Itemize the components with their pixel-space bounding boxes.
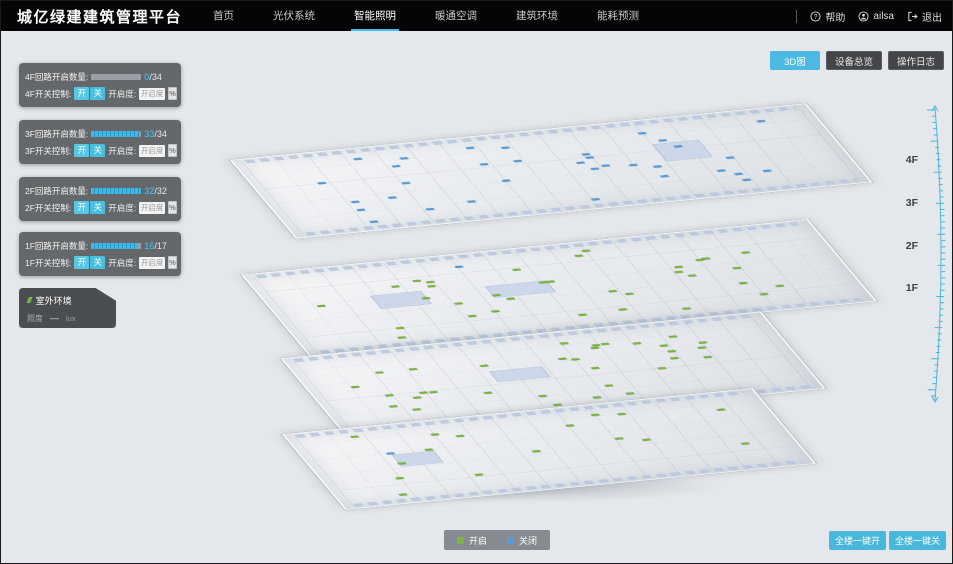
help-label: 帮助 (825, 9, 845, 24)
floor-zoom-ruler[interactable] (921, 104, 949, 404)
circuit-count-label-4f: 4F回路开启数量: (25, 71, 88, 83)
switch-off-button-1f[interactable]: 关 (90, 256, 105, 269)
legend-off-swatch (507, 537, 514, 544)
switch-label-2f: 2F开关控制: (25, 202, 71, 214)
user-menu[interactable]: ailsa (858, 11, 894, 22)
user-area: ? 帮助 ailsa 退出 (796, 1, 942, 31)
dim-label-4f: 开启度: (108, 88, 136, 100)
percent-button-2f[interactable]: % (168, 201, 177, 214)
percent-button-1f[interactable]: % (168, 256, 177, 269)
dim-label-3f: 开启度: (108, 145, 136, 157)
circuit-count-value-4f: 0/34 (144, 72, 162, 82)
illuminance-unit: lux (66, 314, 76, 323)
help-button[interactable]: ? 帮助 (810, 9, 845, 24)
switch-label-1f: 1F开关控制: (25, 257, 71, 269)
nav-item-lighting[interactable]: 智能照明 (351, 1, 399, 31)
percent-button-4f[interactable]: % (168, 87, 177, 100)
floor-panel-3f: 3F回路开启数量: 33/34 3F开关控制: 开 关 开启度: % (19, 120, 181, 164)
light-rays-icon: /// (27, 296, 31, 305)
circuit-progress-bar-3f (91, 131, 141, 137)
illuminance-value: — (50, 313, 59, 323)
svg-text:?: ? (814, 13, 818, 20)
logout-icon (907, 11, 918, 22)
username: ailsa (873, 11, 894, 22)
app-window: 城亿绿建建筑管理平台 首页 光伏系统 智能照明 暖通空调 建筑环境 能耗预测 ?… (0, 0, 953, 564)
floor-panel-4f: 4F回路开启数量: 0/34 4F开关控制: 开 关 开启度: % (19, 63, 181, 107)
app-title: 城亿绿建建筑管理平台 (17, 6, 182, 27)
dim-input-4f[interactable] (139, 88, 165, 100)
dim-input-1f[interactable] (139, 257, 165, 269)
circuit-progress-bar-1f (91, 243, 141, 249)
circuit-count-label-3f: 3F回路开启数量: (25, 128, 88, 140)
circuit-progress-bar-2f (91, 188, 141, 194)
percent-button-3f[interactable]: % (168, 144, 177, 157)
logout-button[interactable]: 退出 (907, 9, 942, 24)
circuit-count-label-1f: 1F回路开启数量: (25, 240, 88, 252)
switch-on-button-2f[interactable]: 开 (74, 201, 89, 214)
floor-panel-1f: 1F回路开启数量: 16/17 1F开关控制: 开 关 开启度: % (19, 232, 181, 276)
building-floor-slab-4f[interactable] (230, 103, 873, 238)
dim-label-1f: 开启度: (108, 257, 136, 269)
logout-label: 退出 (922, 9, 942, 24)
nav-divider (796, 10, 797, 23)
view-3d-button[interactable]: 3D图 (770, 51, 820, 70)
circuit-count-label-2f: 2F回路开启数量: (25, 185, 88, 197)
legend-off-label: 关闭 (519, 534, 537, 547)
all-on-button[interactable]: 全楼一键开 (829, 531, 886, 550)
nav-item-home[interactable]: 首页 (210, 1, 237, 31)
switch-label-4f: 4F开关控制: (25, 88, 71, 100)
status-legend: 开启 关闭 (444, 530, 550, 550)
top-nav: 城亿绿建建筑管理平台 首页 光伏系统 智能照明 暖通空调 建筑环境 能耗预测 ?… (1, 1, 952, 31)
switch-label-3f: 3F开关控制: (25, 145, 71, 157)
floor-label-1f[interactable]: 1F (906, 282, 918, 294)
help-icon: ? (810, 11, 821, 22)
dim-input-3f[interactable] (139, 145, 165, 157)
outdoor-title: 室外环境 (36, 294, 72, 307)
circuit-count-value-1f: 16/17 (144, 241, 167, 251)
illuminance-label: 照度 (27, 313, 43, 324)
main-nav: 首页 光伏系统 智能照明 暖通空调 建筑环境 能耗预测 (210, 1, 642, 31)
switch-off-button-2f[interactable]: 关 (90, 201, 105, 214)
dim-label-2f: 开启度: (108, 202, 136, 214)
switch-on-button-4f[interactable]: 开 (74, 87, 89, 100)
view-toolbar: 3D图 设备总览 操作日志 (770, 51, 944, 70)
floor-panel-2f: 2F回路开启数量: 32/32 2F开关控制: 开 关 开启度: % (19, 177, 181, 221)
all-off-button[interactable]: 全楼一键关 (889, 531, 946, 550)
floor-label-4f[interactable]: 4F (906, 154, 918, 166)
floor-label-3f[interactable]: 3F (906, 197, 918, 209)
legend-on-label: 开启 (469, 534, 487, 547)
switch-on-button-3f[interactable]: 开 (74, 144, 89, 157)
nav-item-pv-system[interactable]: 光伏系统 (270, 1, 318, 31)
circuit-count-value-3f: 33/34 (144, 129, 167, 139)
bulk-actions: 全楼一键开 全楼一键关 (829, 531, 946, 550)
device-overview-button[interactable]: 设备总览 (826, 51, 882, 70)
nav-item-environment[interactable]: 建筑环境 (513, 1, 561, 31)
nav-item-energy[interactable]: 能耗预测 (594, 1, 642, 31)
switch-on-button-1f[interactable]: 开 (74, 256, 89, 269)
switch-off-button-3f[interactable]: 关 (90, 144, 105, 157)
building-3d-view[interactable] (206, 56, 936, 526)
floor-label-2f[interactable]: 2F (906, 240, 918, 252)
nav-item-hvac[interactable]: 暖通空调 (432, 1, 480, 31)
user-icon (858, 11, 869, 22)
circuit-count-value-2f: 32/32 (144, 186, 167, 196)
switch-off-button-4f[interactable]: 关 (90, 87, 105, 100)
operation-log-button[interactable]: 操作日志 (888, 51, 944, 70)
outdoor-env-panel: /// 室外环境 照度 — lux (19, 288, 116, 328)
circuit-progress-bar-4f (91, 74, 141, 80)
dim-input-2f[interactable] (139, 202, 165, 214)
legend-on-swatch (457, 537, 464, 544)
